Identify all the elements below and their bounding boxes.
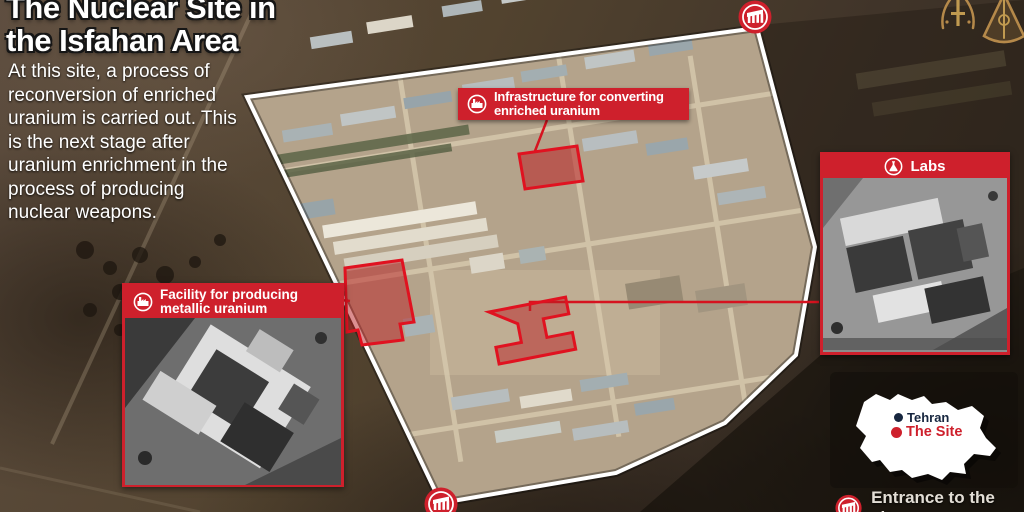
inset-facility: Facility for producing metallic uranium: [122, 283, 344, 487]
building-infrastructure: [519, 146, 583, 189]
inset-labs: Labs: [820, 152, 1010, 355]
callout-infrastructure: Infrastructure for converting enriched u…: [458, 88, 689, 120]
inset-facility-header: Facility for producing metallic uranium: [125, 286, 341, 318]
title-line-2: the Isfahan Area: [6, 24, 276, 57]
legend-entrance-label: Entrance to the site: [871, 488, 1024, 512]
tehran-dot-icon: [894, 413, 903, 422]
inset-facility-label-line2: metallic uranium: [160, 302, 298, 316]
map-site-row: The Site: [891, 424, 962, 440]
flask-icon: [884, 157, 903, 176]
callout-infrastructure-label-line1: Infrastructure for converting: [494, 90, 664, 104]
entrance-marker-top: [739, 1, 772, 34]
factory-icon: [467, 94, 487, 114]
description-text: At this site, a process of reconversion …: [8, 60, 246, 225]
gate-icon: [834, 493, 863, 512]
inset-labs-label: Labs: [910, 158, 945, 175]
title-line-1: The Nuclear Site in: [6, 0, 276, 24]
inset-labs-header: Labs: [823, 155, 1007, 178]
legend-entrance: Entrance to the site: [834, 488, 1024, 512]
infographic-root: The Nuclear Site in the Isfahan Area At …: [0, 0, 1024, 512]
map-capital-label: Tehran: [907, 410, 949, 425]
inset-labs-photo: [823, 178, 1007, 350]
map-site-label: The Site: [906, 424, 962, 440]
iran-locator-map: Tehran The Site: [830, 372, 1018, 488]
factory-icon: [133, 292, 153, 312]
site-dot-icon: [891, 427, 902, 438]
map-capital-row: Tehran: [894, 410, 949, 425]
inset-facility-label-line1: Facility for producing: [160, 288, 298, 302]
callout-infrastructure-label-line2: enriched uranium: [494, 104, 664, 118]
inset-facility-photo: [125, 318, 341, 485]
page-title: The Nuclear Site in the Isfahan Area: [6, 0, 276, 57]
